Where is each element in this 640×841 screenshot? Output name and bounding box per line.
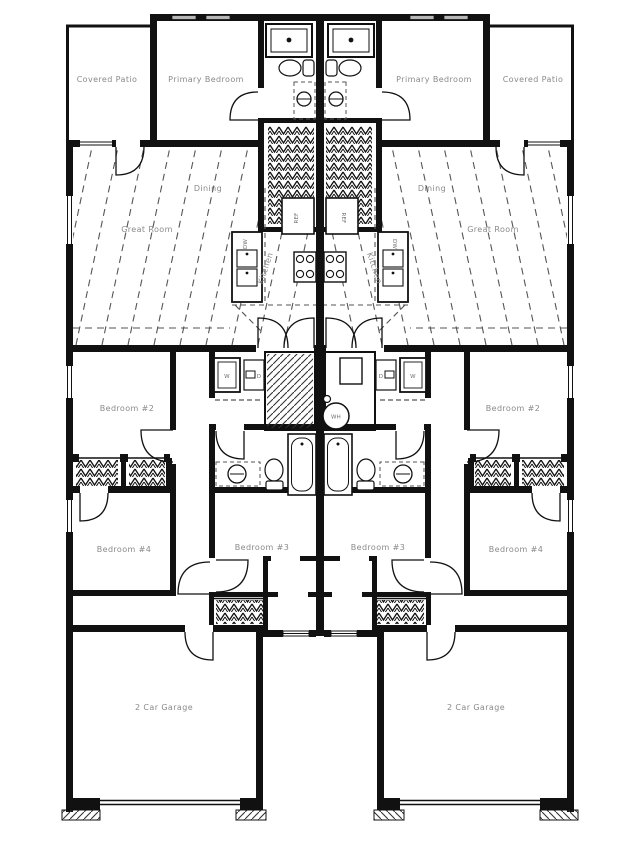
room-label-great-room: Great Room (467, 225, 519, 234)
room-label-bedroom-3: Bedroom #3 (351, 543, 406, 552)
side-window (66, 196, 73, 244)
room-label-bedroom-2: Bedroom #2 (100, 404, 155, 413)
room-label-great-room: Great Room (121, 225, 173, 234)
vanity-sink (294, 82, 315, 119)
floor-plan-sheet: WH Covered Patio Primary Bedroom Dining … (0, 0, 640, 841)
hall-door (178, 562, 210, 594)
dryer-label: D (379, 374, 383, 380)
ref-label: REF (294, 212, 300, 223)
garage-entry-door (185, 632, 213, 660)
room-label-bedroom-3: Bedroom #3 (235, 543, 290, 552)
room-label-primary-bedroom: Primary Bedroom (396, 75, 472, 84)
room-label-covered-patio: Covered Patio (77, 75, 138, 84)
unit-right-geometry (314, 14, 640, 820)
washer-label: W (410, 374, 416, 380)
hall-bath-fixtures (216, 434, 316, 495)
side-window (66, 500, 73, 532)
garage-door-jamb (236, 810, 266, 820)
water-heater-label: WH (331, 415, 341, 421)
room-label-garage: 2 Car Garage (135, 703, 193, 712)
stove (294, 252, 316, 282)
primary-bath-door (230, 92, 258, 120)
room-label-garage: 2 Car Garage (447, 703, 505, 712)
chase-hatch (267, 354, 313, 428)
island-sink-basin (237, 250, 257, 267)
entry-double-door (258, 318, 288, 348)
bedroom4-door (80, 493, 108, 521)
room-label-bedroom-4: Bedroom #4 (97, 545, 152, 554)
toilet (279, 60, 314, 76)
room-label-dining: Dining (194, 184, 222, 193)
floorplan-canvas: WH Covered Patio Primary Bedroom Dining … (0, 0, 640, 841)
entry-double-door (284, 318, 314, 348)
window-glass (206, 16, 230, 20)
ref-label: REF (340, 212, 346, 223)
side-window (66, 366, 73, 398)
room-label-bedroom-4: Bedroom #4 (489, 545, 544, 554)
toilet (265, 459, 283, 490)
island-sink-basin (237, 269, 257, 286)
bedroom2-closet-rod (129, 460, 165, 486)
room-label-dining: Dining (418, 184, 446, 193)
porch-window (283, 631, 309, 636)
water-heater: WH (323, 358, 362, 429)
primary-bath-fixtures (266, 24, 315, 119)
dw-label: DW (243, 239, 249, 249)
bedroom2-closet-rod (76, 460, 118, 486)
bathtub (288, 434, 316, 495)
room-label-covered-patio: Covered Patio (503, 75, 564, 84)
hall-bath-door (216, 431, 244, 459)
patio-door (116, 147, 144, 175)
washer-label: W (224, 374, 230, 380)
bedroom3-door (216, 560, 248, 592)
room-label-primary-bedroom: Primary Bedroom (168, 75, 244, 84)
garage-door-jamb (62, 810, 100, 820)
vanity-sink (216, 462, 260, 486)
window-glass (172, 16, 196, 20)
coat-closet-rod (216, 600, 263, 624)
room-label-bedroom-2: Bedroom #2 (486, 404, 541, 413)
dw-label: DW (391, 239, 397, 249)
dryer-label: D (257, 374, 261, 380)
